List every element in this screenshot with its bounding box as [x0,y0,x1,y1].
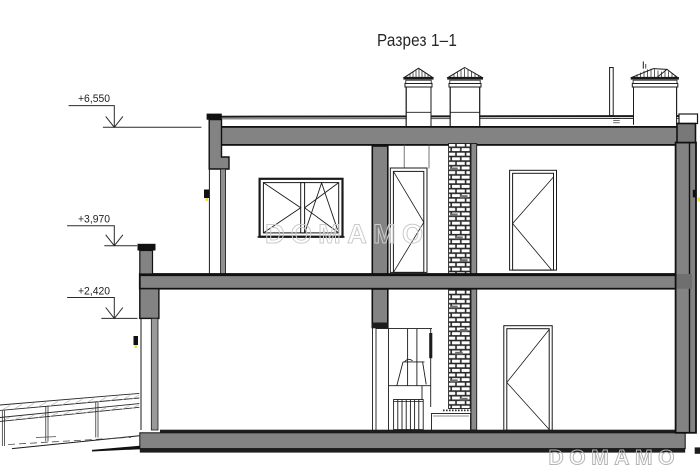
svg-text:Разрез 1–1: Разрез 1–1 [377,30,457,50]
svg-text:+2,420: +2,420 [78,286,110,298]
svg-text:+6,550: +6,550 [78,93,110,105]
svg-text:DOMAMO: DOMAMO [265,219,429,249]
svg-text:+3,970: +3,970 [78,214,110,226]
svg-text:DOMAMO: DOMAMO [549,447,681,470]
